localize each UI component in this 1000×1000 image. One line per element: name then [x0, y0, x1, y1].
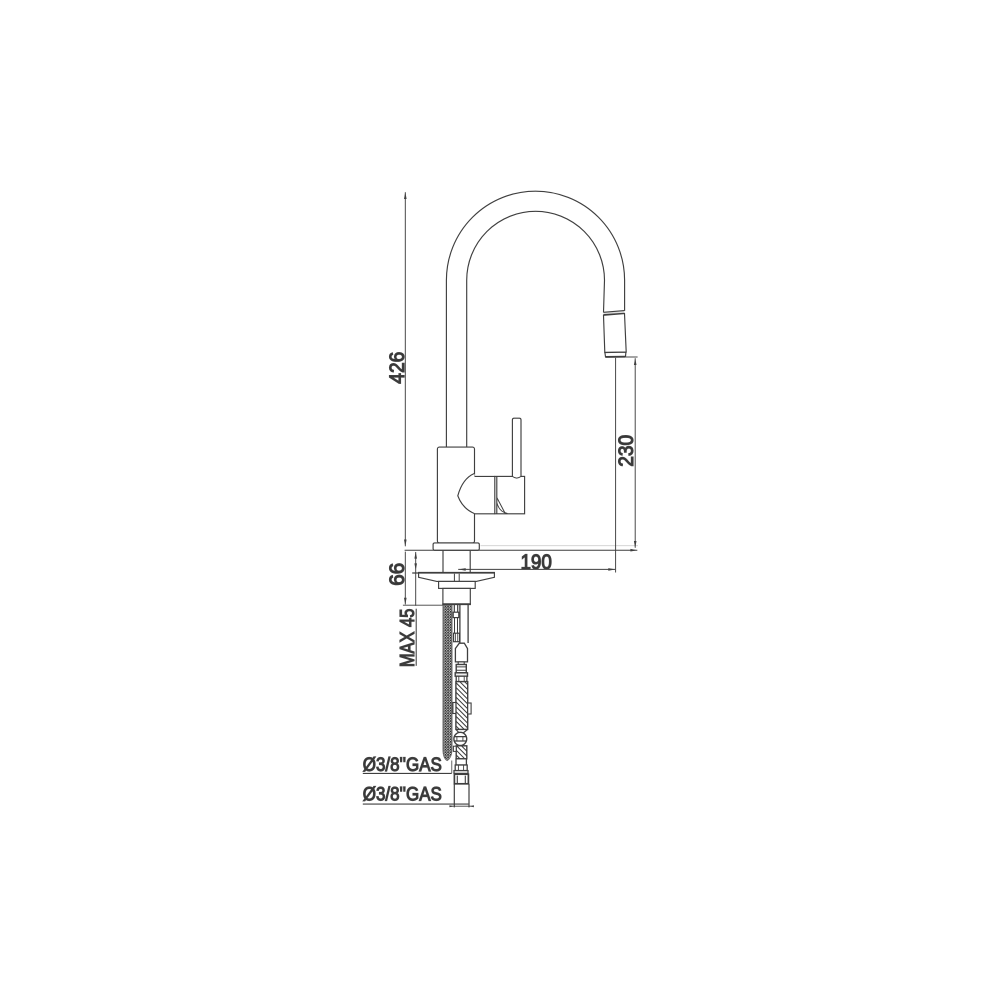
svg-text:190: 190 [520, 551, 552, 574]
svg-text:230: 230 [615, 435, 638, 467]
svg-text:426: 426 [386, 352, 409, 384]
svg-text:Ø3/8''GAS: Ø3/8''GAS [363, 783, 442, 805]
svg-text:Ø3/8''GAS: Ø3/8''GAS [363, 754, 442, 776]
svg-text:MAX 45: MAX 45 [397, 609, 419, 668]
svg-text:66: 66 [386, 563, 409, 586]
